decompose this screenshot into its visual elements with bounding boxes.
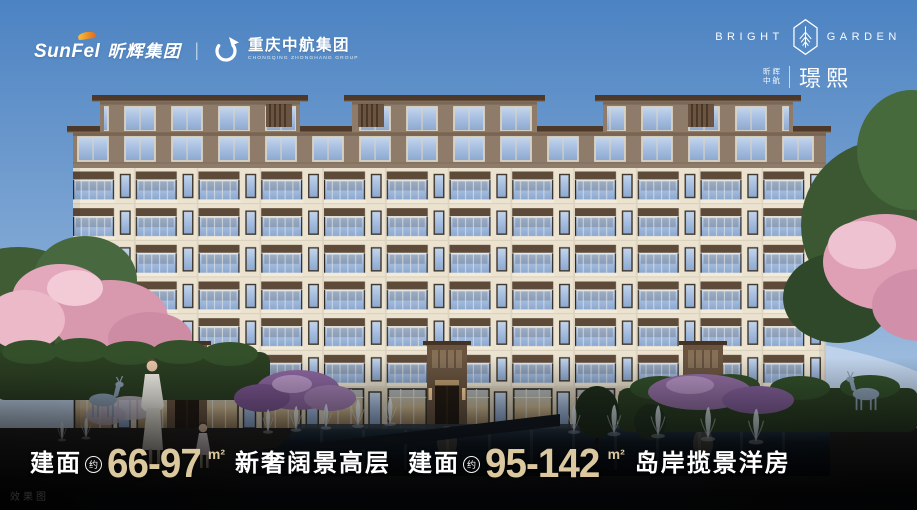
area-unit: m² (608, 446, 625, 462)
zhonghang-logo: 重庆中航集团 CHONGQING ZHONGHANG GROUP (212, 36, 359, 64)
zhonghang-emblem-icon (212, 36, 240, 64)
approx-circle-badge: 约 (463, 456, 480, 473)
project-logo-en-row: BRIGHT GARDEN (715, 18, 901, 56)
area-range: 66-97 (107, 446, 201, 481)
sunfel-brand-en: SunFel (34, 41, 100, 63)
bright-garden-emblem-icon (793, 18, 818, 56)
zhonghang-text: 重庆中航集团 CHONGQING ZHONGHANG GROUP (248, 38, 359, 61)
product-title: 新奢阔景高层 (235, 443, 391, 481)
project-logo-divider (789, 66, 790, 88)
penthouse-tower-right (595, 95, 801, 132)
penthouse-band (67, 126, 831, 168)
hedge-left (0, 338, 270, 400)
real-estate-poster: SunFel 昕辉集团 | 重庆中航集团 CHONGQING ZHONGHANG… (0, 0, 917, 510)
headline-highrise: 建面 约 66-97 m² 新奢阔景高层 (30, 443, 391, 481)
project-logo: BRIGHT GARDEN 昕辉 中航 璟熙 (719, 18, 897, 93)
sunfel-logo: SunFel 昕辉集团 (34, 37, 181, 63)
headline-prefix: 建面 (30, 443, 82, 481)
project-name-cn: 璟熙 (797, 61, 853, 93)
sunfel-brand-cn: 昕辉集团 (107, 37, 181, 62)
penthouse-tower-center (344, 95, 545, 132)
approx-circle-badge: 约 (85, 456, 102, 473)
render-watermark: 效果图 (10, 488, 49, 503)
headline-mansion: 建面 约 95-142 m² 岛岸揽景洋房 (408, 443, 791, 481)
zhonghang-name-cn: 重庆中航集团 (248, 38, 359, 54)
headline: 建面 约 66-97 m² 新奢阔景高层 建面 约 95-142 m² 岛岸揽景… (30, 443, 791, 481)
brand-divider: | (194, 40, 199, 61)
project-name-en-right: GARDEN (827, 31, 901, 43)
project-owner: 昕辉 中航 (763, 68, 782, 85)
project-owner-bottom: 中航 (763, 77, 782, 86)
headline-prefix: 建面 (408, 443, 460, 481)
developer-brands: SunFel 昕辉集团 | 重庆中航集团 CHONGQING ZHONGHANG… (34, 36, 359, 64)
project-name-en-left: BRIGHT (715, 31, 784, 43)
area-range: 95-142 (485, 446, 599, 481)
area-unit: m² (208, 446, 225, 462)
product-title: 岛岸揽景洋房 (635, 443, 791, 481)
penthouse-tower-left (92, 95, 308, 132)
zhonghang-name-en: CHONGQING ZHONGHANG GROUP (248, 57, 359, 62)
project-logo-cn-row: 昕辉 中航 璟熙 (763, 61, 853, 93)
